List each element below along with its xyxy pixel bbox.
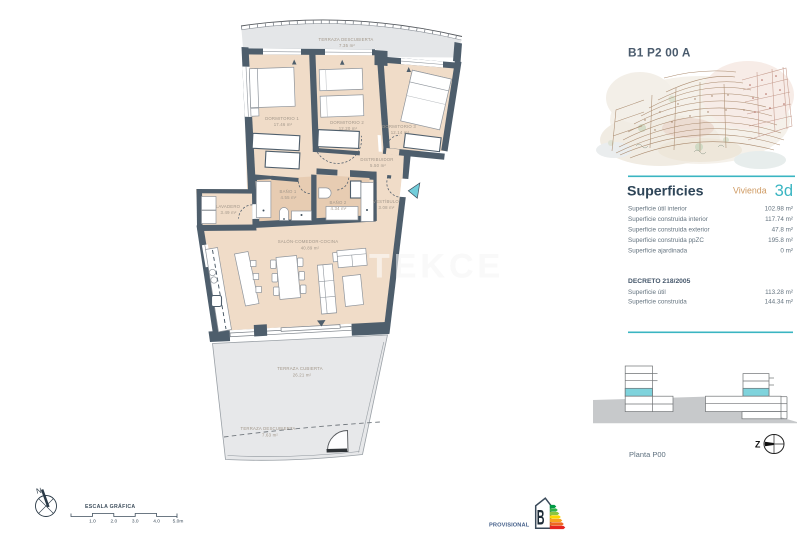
- svg-text:Superficie útil interior: Superficie útil interior: [628, 206, 687, 213]
- svg-text:12.14 m²: 12.14 m²: [391, 130, 410, 135]
- svg-text:Superficie construida: Superficie construida: [628, 299, 687, 306]
- svg-text:Superficie útil: Superficie útil: [628, 289, 666, 296]
- svg-text:BAÑO 1: BAÑO 1: [280, 189, 297, 194]
- svg-text:Superficie construida ppZC: Superficie construida ppZC: [628, 237, 704, 244]
- svg-text:Planta P00: Planta P00: [629, 450, 666, 459]
- svg-text:7.63 m²: 7.63 m²: [262, 433, 278, 438]
- svg-text:113.28 m²: 113.28 m²: [765, 289, 793, 296]
- svg-text:26.21 m²: 26.21 m²: [293, 373, 312, 378]
- svg-text:5.50 m²: 5.50 m²: [370, 163, 386, 168]
- svg-text:ESCALA GRÁFICA: ESCALA GRÁFICA: [85, 503, 135, 510]
- svg-text:B: B: [537, 506, 545, 530]
- svg-text:4.55 m²: 4.55 m²: [281, 195, 297, 200]
- svg-text:B1 P2 00 A: B1 P2 00 A: [628, 46, 691, 60]
- svg-text:DORMITORIO 2: DORMITORIO 2: [330, 120, 364, 125]
- svg-text:Z: Z: [755, 440, 761, 450]
- svg-text:1.0: 1.0: [89, 519, 96, 525]
- svg-text:DECRETO 218/2005: DECRETO 218/2005: [628, 278, 691, 285]
- svg-text:144.34 m²: 144.34 m²: [765, 299, 793, 306]
- svg-text:Superficie ajardinada: Superficie ajardinada: [628, 248, 688, 255]
- svg-text:3d: 3d: [775, 182, 793, 200]
- svg-text:DORMITORIO 3: DORMITORIO 3: [382, 124, 416, 129]
- svg-text:BAÑO 2: BAÑO 2: [330, 200, 347, 205]
- svg-text:TERRAZA DESCUBIERTA: TERRAZA DESCUBIERTA: [319, 37, 374, 42]
- svg-text:Vivienda: Vivienda: [733, 186, 767, 196]
- svg-text:Superficie construida exterior: Superficie construida exterior: [628, 227, 710, 234]
- svg-text:4.0: 4.0: [153, 519, 160, 525]
- svg-text:VESTÍBULO: VESTÍBULO: [373, 199, 399, 204]
- svg-text:SALÓN-COMEDOR-COCINA: SALÓN-COMEDOR-COCINA: [278, 239, 339, 244]
- svg-text:DISTRIBUIDOR: DISTRIBUIDOR: [360, 157, 393, 162]
- svg-text:Superficie construida interior: Superficie construida interior: [628, 216, 708, 223]
- svg-text:PROVISIONAL: PROVISIONAL: [489, 523, 530, 529]
- svg-text:3.0: 3.0: [132, 519, 139, 525]
- svg-text:Superficies: Superficies: [627, 184, 704, 200]
- svg-text:102.98 m²: 102.98 m²: [765, 206, 793, 213]
- svg-text:3.08 m²: 3.08 m²: [379, 205, 395, 210]
- svg-text:4.34 m²: 4.34 m²: [331, 206, 347, 211]
- svg-text:TEKCE: TEKCE: [369, 248, 504, 286]
- svg-text:40.89 m²: 40.89 m²: [301, 246, 320, 251]
- svg-text:0 m²: 0 m²: [780, 248, 793, 255]
- svg-text:17.46 m²: 17.46 m²: [274, 122, 293, 127]
- svg-text:117.74 m²: 117.74 m²: [765, 216, 793, 223]
- svg-text:TERRAZA DESCUBIERTA: TERRAZA DESCUBIERTA: [241, 426, 296, 431]
- svg-text:LAVADERO: LAVADERO: [216, 204, 241, 209]
- svg-text:7.35 m²: 7.35 m²: [339, 43, 355, 48]
- svg-text:47.8 m²: 47.8 m²: [772, 227, 793, 234]
- svg-text:DORMITORIO 1: DORMITORIO 1: [265, 116, 299, 121]
- svg-text:12.20 m²: 12.20 m²: [339, 126, 358, 131]
- svg-text:TERRAZA CUBIERTA: TERRAZA CUBIERTA: [277, 366, 323, 371]
- svg-text:5.0m: 5.0m: [173, 519, 184, 525]
- svg-text:2.0: 2.0: [110, 519, 117, 525]
- svg-text:195.8 m²: 195.8 m²: [768, 237, 793, 244]
- svg-text:3.49 m²: 3.49 m²: [221, 210, 237, 215]
